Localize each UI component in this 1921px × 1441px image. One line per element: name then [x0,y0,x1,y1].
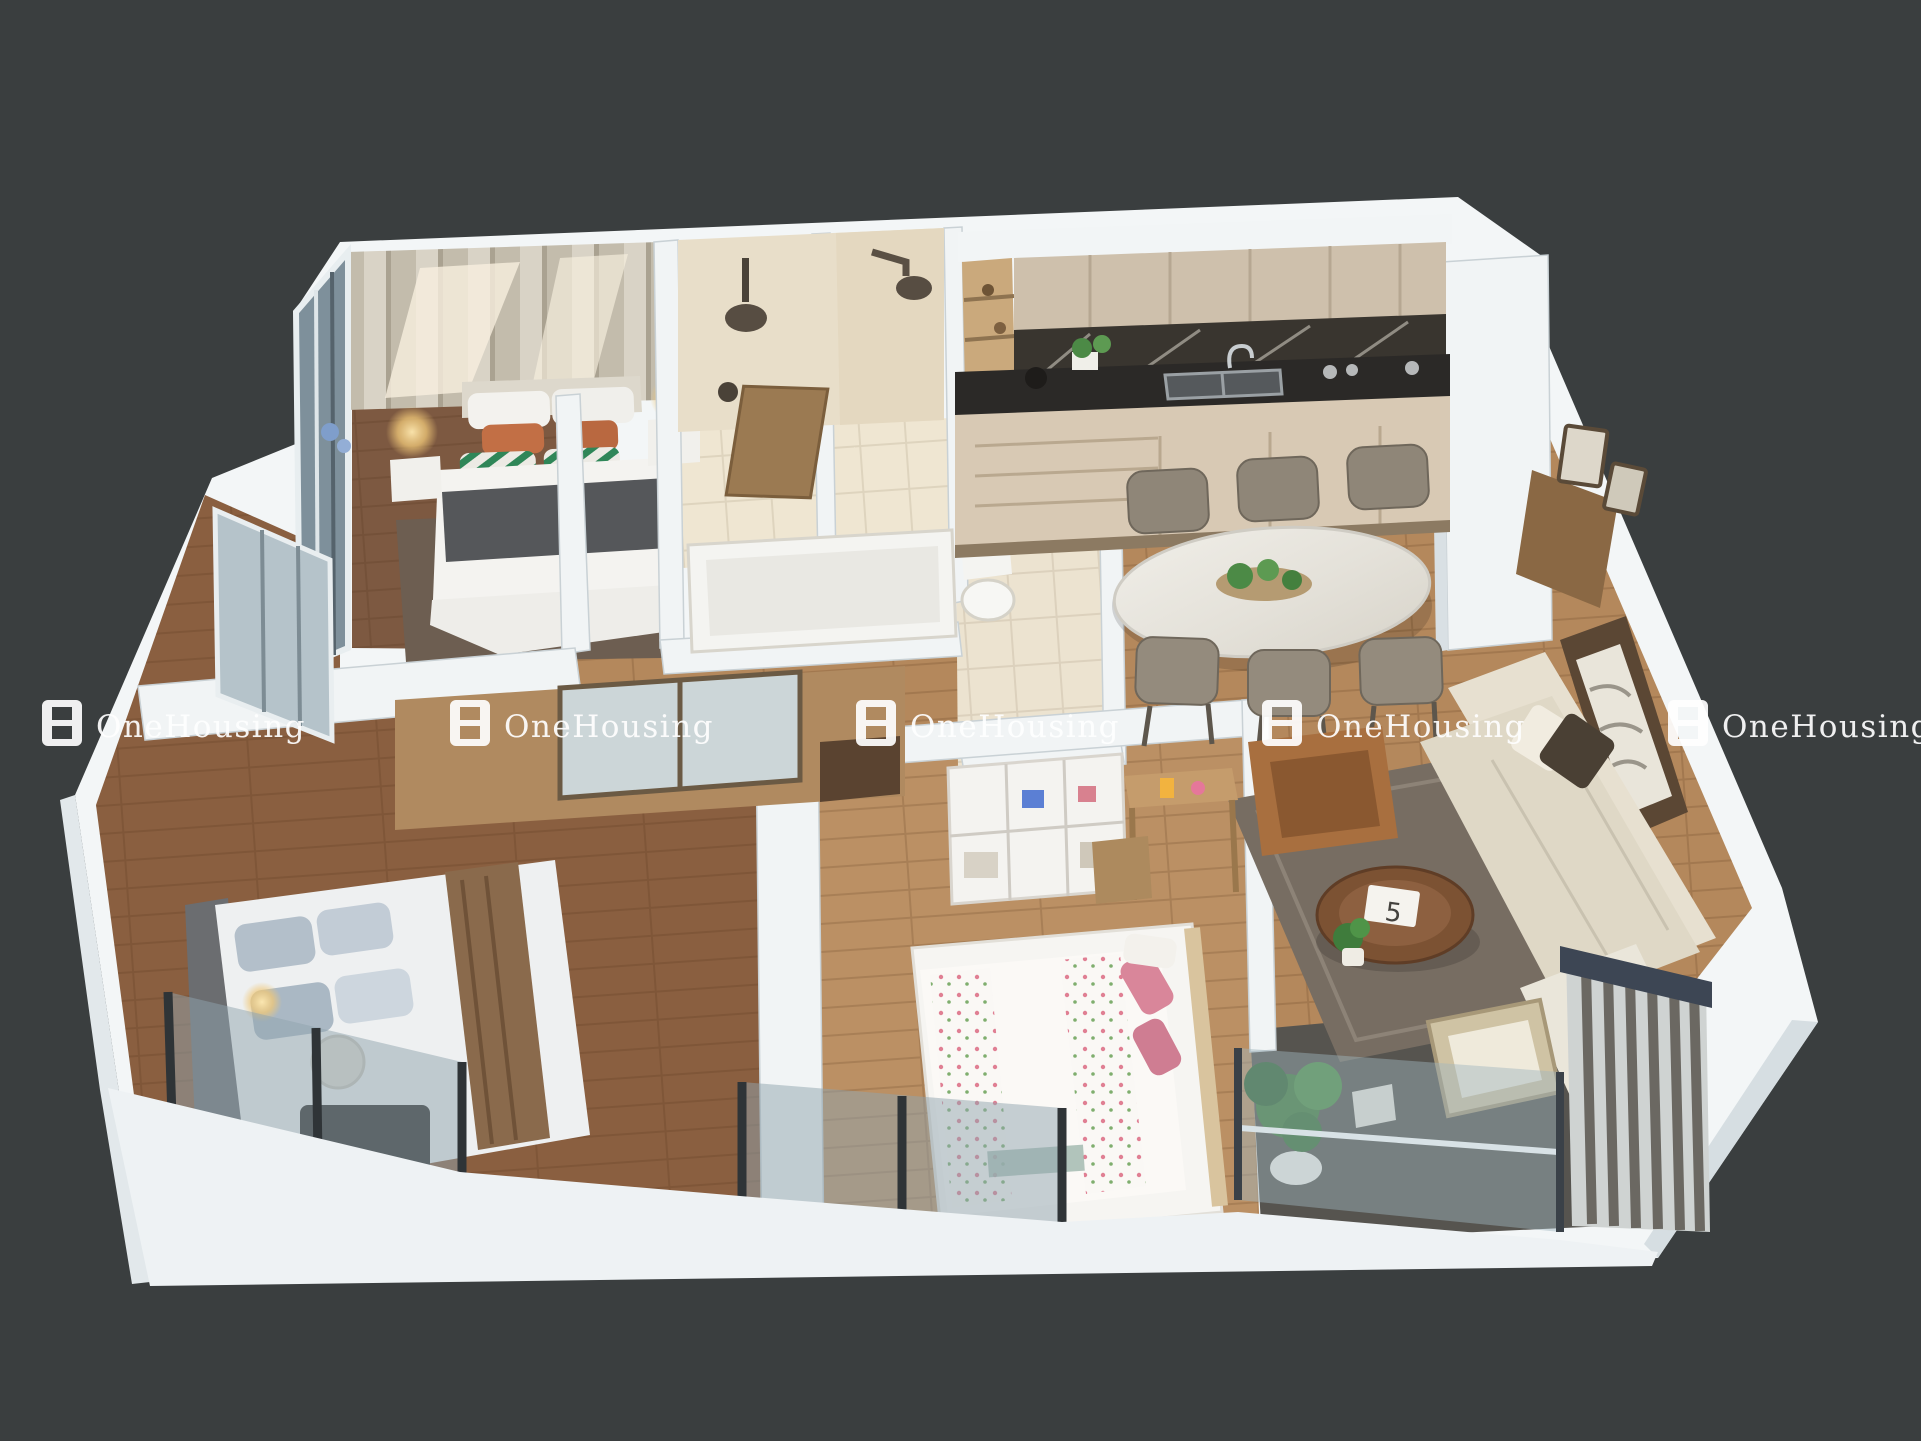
watermark-logo-icon [42,700,82,746]
armchair-seat [1270,750,1380,838]
watermark-text: OneHousing [1722,709,1921,745]
shower-stem [742,258,749,302]
glassware2 [1346,364,1358,376]
balcony-slat-screen [1560,946,1712,1232]
bed1-lamp-left [386,406,438,458]
centerpiece-plant [1227,563,1253,589]
watermark-text: OneHousing [504,709,714,745]
fridge-column [1442,255,1552,650]
coffee-table-plant2 [1350,918,1370,938]
rain-shower-head [725,304,767,332]
watermark-logo-icon [1668,700,1708,746]
blue-flowers [321,423,339,441]
rain-shower-head-2 [896,276,932,300]
picture-frame2 [1604,463,1647,515]
shower-mixer [718,382,738,402]
mirror-divider [262,530,264,712]
dining-chair [1126,468,1209,534]
bed1-orange-pillow [481,423,544,455]
glassware3 [1405,361,1419,375]
floorplan-scene: 5 [0,0,1921,1441]
desk-lamp-pink [1191,781,1205,795]
watermark-text: OneHousing [1316,709,1526,745]
sink-divider [1222,373,1224,397]
bed1-white-pillow [467,391,550,430]
watermark-logo-icon [1262,700,1302,746]
centerpiece-plant3 [1282,570,1302,590]
mirror-divider2 [298,546,300,726]
dining-chair [1135,637,1219,706]
kettle [1025,367,1047,389]
counter-plant2 [1093,335,1111,353]
sliding-barn-door [726,380,828,505]
desk-toy-yellow [1160,778,1174,798]
watermark-logo-icon [450,700,490,746]
dining-chair [1346,444,1429,510]
desk-chair [1092,836,1152,904]
centerpiece-plant2 [1257,559,1279,581]
bathtub-inner [706,546,940,636]
counter-plant [1072,338,1092,358]
shelf-bottle2 [994,322,1006,334]
shelf-toy-pink [1078,786,1096,802]
watermark-logo-icon [856,700,896,746]
blue-flowers-2 [337,439,351,453]
watermark-text: OneHousing [910,709,1120,745]
coffee-table-plant-pot [1342,948,1364,966]
shelf-bottle [982,284,994,296]
shelf-toy-blue [1022,790,1044,808]
shelf-basket [964,852,998,878]
floorplan-render: 5 [0,0,1921,1441]
dining-chair [1359,637,1443,706]
toilet [962,551,1014,620]
bed1-nightstand-left [390,456,442,502]
watermark-text: OneHousing [96,709,306,745]
coffee-table: 5 [1316,867,1480,972]
toilet-bowl [962,580,1014,620]
dining-chair [1236,456,1319,522]
bed1-dark-blanket [442,478,668,562]
glassware [1323,365,1337,379]
picture-frame [1558,425,1607,486]
